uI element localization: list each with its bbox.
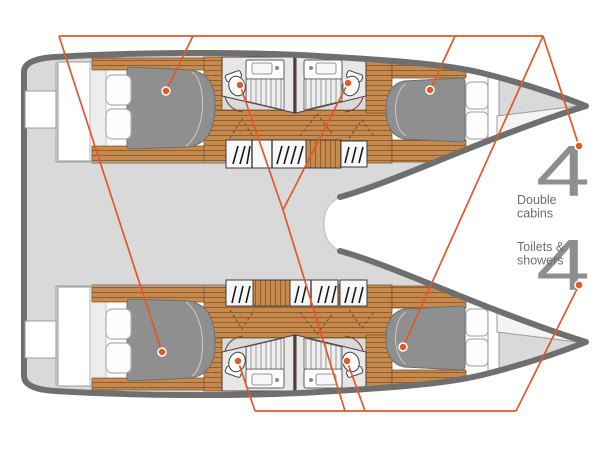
pillow bbox=[466, 112, 488, 139]
callout-dot-cabin bbox=[399, 343, 407, 351]
callout-dot-toilets-count bbox=[575, 281, 583, 289]
callout-dot-cabins-count bbox=[575, 142, 583, 150]
stern-step-port bbox=[25, 91, 56, 128]
pillow bbox=[106, 109, 131, 139]
faucet-icon bbox=[275, 66, 279, 70]
callout-dot-toilet bbox=[343, 357, 351, 365]
callout-dot-toilet bbox=[236, 81, 244, 89]
toilets-showers-label: Toilets & showers bbox=[517, 240, 568, 268]
bed-port-fwd bbox=[386, 78, 465, 142]
stern-step-starboard bbox=[25, 321, 56, 358]
layout-canvas: 4 4 Double cabins Toilets & showers bbox=[0, 0, 600, 450]
faucet-icon bbox=[309, 66, 313, 70]
callout-dot-toilet bbox=[344, 79, 352, 87]
callout-dot-cabin bbox=[162, 87, 170, 95]
steps-starboard bbox=[226, 280, 367, 306]
callout-dot-toilet bbox=[234, 357, 242, 365]
steps-port bbox=[226, 140, 367, 168]
double-cabins-label: Double cabins bbox=[517, 193, 560, 221]
sink-basin bbox=[316, 63, 336, 74]
callout-dot-cabin bbox=[158, 348, 166, 356]
callout-dot-cabin bbox=[426, 86, 434, 94]
catamaran-layout-diagram: 4 4 Double cabins Toilets & showers bbox=[0, 0, 600, 450]
sink-basin bbox=[252, 63, 272, 74]
pillow bbox=[106, 75, 131, 105]
legend: 4 4 Double cabins Toilets & showers bbox=[517, 132, 590, 306]
wardrobe-port-aft bbox=[58, 62, 90, 161]
pillow bbox=[466, 82, 488, 109]
